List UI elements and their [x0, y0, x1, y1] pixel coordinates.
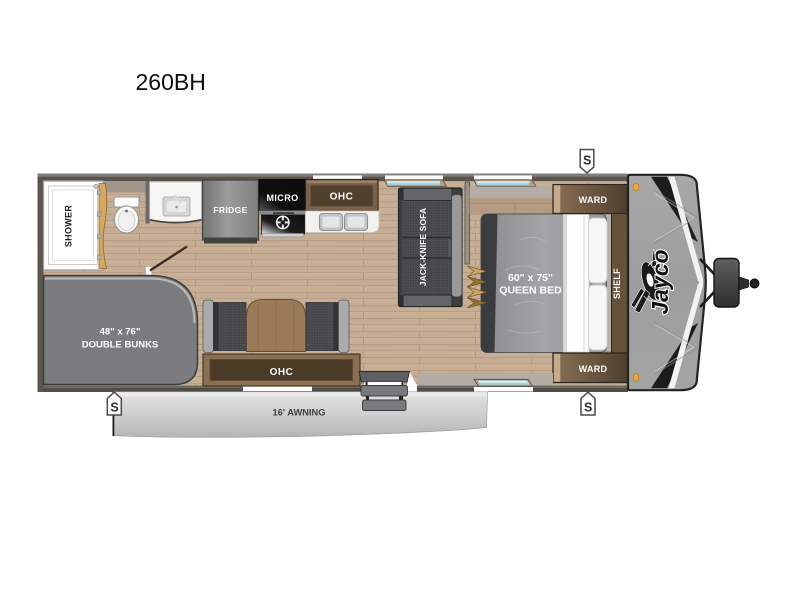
svg-text:OHC: OHC [270, 367, 294, 378]
svg-text:48" x 76": 48" x 76" [100, 327, 141, 338]
svg-text:16' AWNING: 16' AWNING [272, 408, 325, 418]
svg-text:MICRO: MICRO [267, 193, 299, 203]
svg-text:S: S [583, 154, 591, 168]
svg-text:OHC: OHC [330, 192, 354, 203]
svg-text:QUEEN BED: QUEEN BED [499, 285, 562, 297]
svg-text:WARD: WARD [579, 195, 608, 205]
svg-text:60" x 75": 60" x 75" [508, 272, 553, 284]
svg-text:S: S [584, 401, 592, 415]
svg-text:JACK-KNIFE SOFA: JACK-KNIFE SOFA [418, 208, 428, 286]
svg-text:WARD: WARD [579, 364, 608, 374]
svg-text:SHELF: SHELF [612, 268, 622, 299]
svg-text:DOUBLE BUNKS: DOUBLE BUNKS [82, 340, 159, 351]
svg-text:FRIDGE: FRIDGE [213, 205, 248, 215]
svg-text:260BH: 260BH [136, 69, 206, 95]
svg-text:Jayco: Jayco [647, 249, 673, 314]
svg-text:S: S [110, 401, 118, 415]
svg-text:SHOWER: SHOWER [64, 205, 74, 248]
